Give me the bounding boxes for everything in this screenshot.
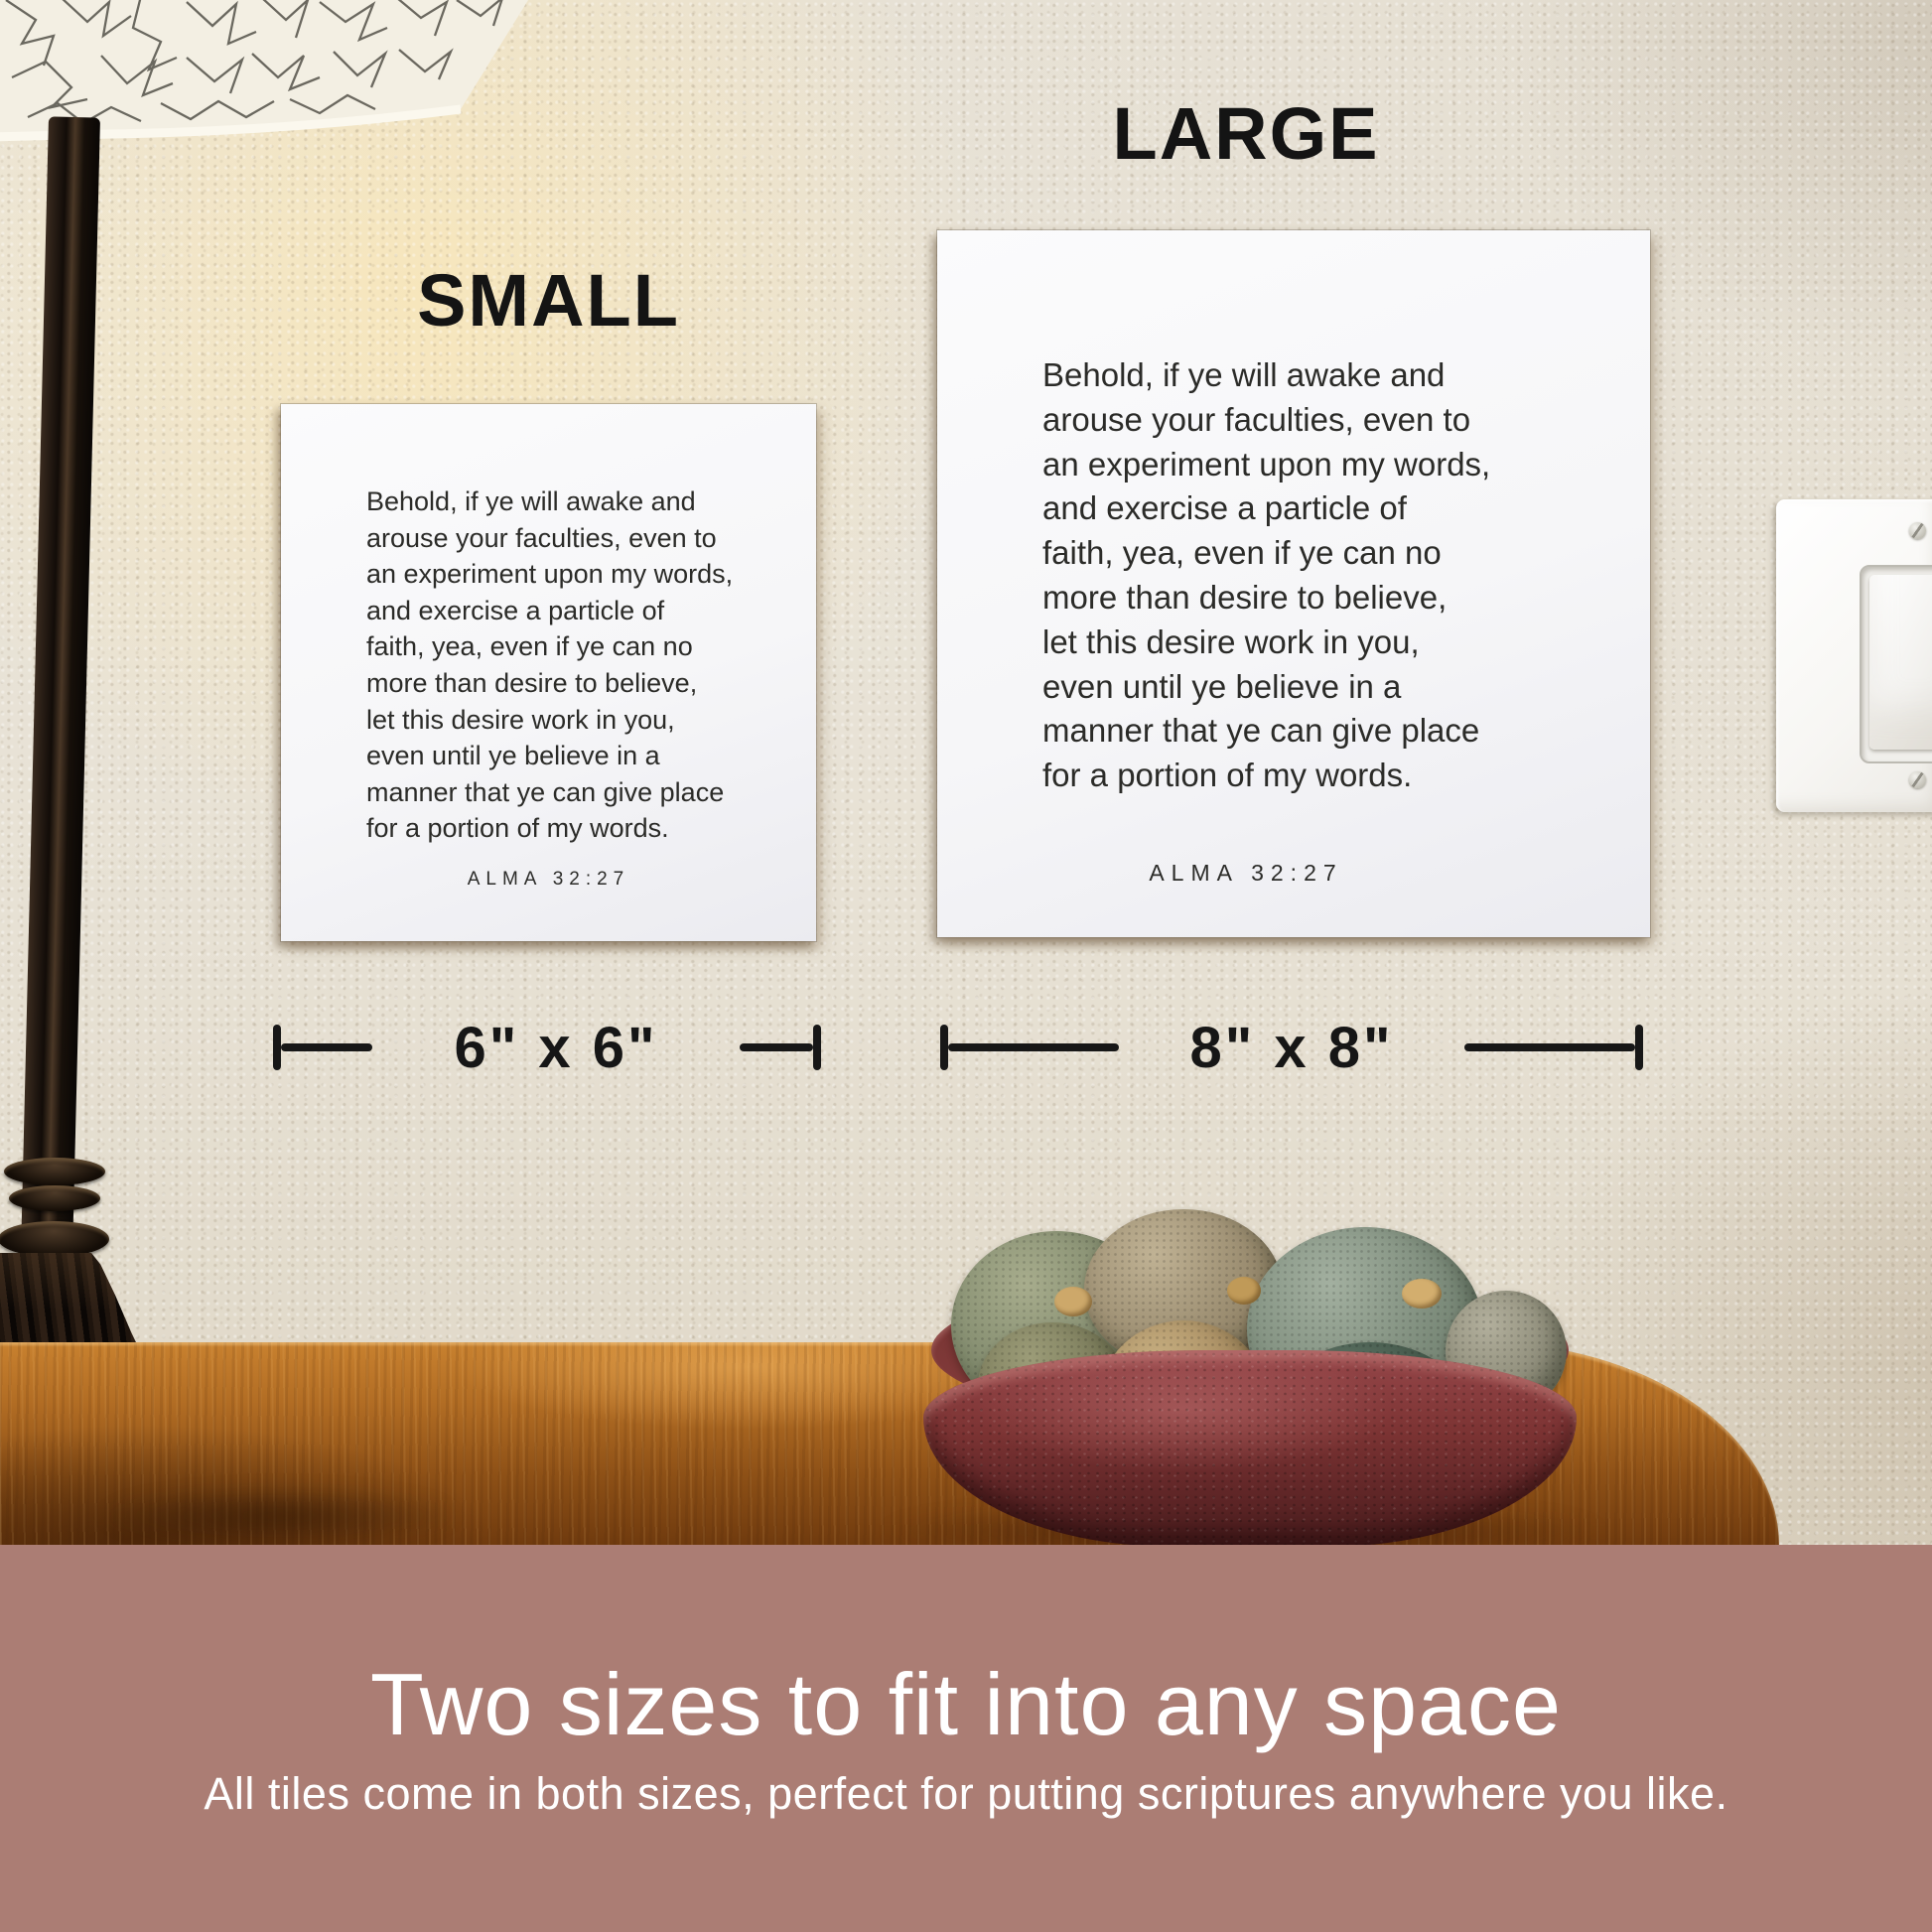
pebble bbox=[1054, 1287, 1092, 1316]
scripture-line: for a portion of my words. bbox=[366, 810, 733, 847]
scripture-line: arouse your faculties, even to bbox=[1042, 398, 1490, 443]
dimension-line bbox=[281, 1043, 372, 1051]
scripture-line: manner that ye can give place bbox=[366, 774, 733, 811]
scripture-line: and exercise a particle of bbox=[366, 593, 733, 629]
dimension-line bbox=[1464, 1043, 1635, 1051]
scripture-line: and exercise a particle of bbox=[1042, 486, 1490, 531]
scripture-line: an experiment upon my words, bbox=[1042, 443, 1490, 487]
scripture-line: Behold, if ye will awake and bbox=[366, 483, 733, 520]
light-switch-rocker bbox=[1869, 575, 1932, 750]
size-label-large: LARGE bbox=[937, 91, 1555, 176]
scripture-line: let this desire work in you, bbox=[1042, 621, 1490, 665]
scripture-line: manner that ye can give place bbox=[1042, 709, 1490, 754]
scripture-tile-small: Behold, if ye will awake andarouse your … bbox=[281, 404, 816, 941]
banner: Two sizes to fit into any space All tile… bbox=[0, 1545, 1932, 1932]
scripture-line: for a portion of my words. bbox=[1042, 754, 1490, 798]
ceramic-bowl bbox=[923, 1350, 1577, 1547]
dimension-annotation-large: 8" x 8" bbox=[940, 1018, 1643, 1077]
scripture-line: let this desire work in you, bbox=[366, 702, 733, 739]
scripture-line: faith, yea, even if ye can no bbox=[366, 628, 733, 665]
dimension-annotation-small: 6" x 6" bbox=[273, 1018, 821, 1077]
product-photo: SMALL LARGE Behold, if ye will awake and… bbox=[0, 0, 1932, 1932]
dimension-end-cap bbox=[273, 1025, 281, 1070]
scripture-reference: ALMA 32:27 bbox=[937, 860, 1555, 887]
scripture-line: more than desire to believe, bbox=[1042, 576, 1490, 621]
pebble bbox=[1227, 1277, 1261, 1305]
dimension-end-cap bbox=[1635, 1025, 1643, 1070]
screw-icon bbox=[1909, 522, 1926, 539]
lamp-pole-ring bbox=[9, 1185, 100, 1211]
scripture-line: faith, yea, even if ye can no bbox=[1042, 531, 1490, 576]
lamp-pole-ring bbox=[4, 1158, 105, 1185]
scripture-line: arouse your faculties, even to bbox=[366, 520, 733, 557]
scripture-line: even until ye believe in a bbox=[366, 738, 733, 774]
scripture-text: Behold, if ye will awake andarouse your … bbox=[366, 483, 733, 847]
screw-icon bbox=[1909, 771, 1926, 788]
scripture-reference: ALMA 32:27 bbox=[281, 869, 816, 891]
size-label-small: SMALL bbox=[281, 258, 816, 343]
dimension-text-small: 6" x 6" bbox=[372, 1015, 740, 1081]
pebble bbox=[1402, 1279, 1442, 1309]
lamp-pole-ring bbox=[0, 1221, 109, 1257]
dimension-line bbox=[740, 1043, 813, 1051]
scripture-line: Behold, if ye will awake and bbox=[1042, 353, 1490, 398]
scripture-line: even until ye believe in a bbox=[1042, 665, 1490, 710]
lamp-shadow bbox=[95, 1485, 463, 1547]
dimension-end-cap bbox=[813, 1025, 821, 1070]
banner-subheading: All tiles come in both sizes, perfect fo… bbox=[0, 1768, 1932, 1820]
light-switch-plate bbox=[1776, 499, 1932, 812]
dimension-text-large: 8" x 8" bbox=[1119, 1015, 1464, 1081]
scripture-text: Behold, if ye will awake andarouse your … bbox=[1042, 353, 1490, 798]
scripture-line: an experiment upon my words, bbox=[366, 556, 733, 593]
scripture-tile-large: Behold, if ye will awake andarouse your … bbox=[937, 230, 1650, 937]
dimension-end-cap bbox=[940, 1025, 948, 1070]
banner-heading: Two sizes to fit into any space bbox=[0, 1545, 1932, 1754]
dimension-line bbox=[948, 1043, 1119, 1051]
scripture-line: more than desire to believe, bbox=[366, 665, 733, 702]
